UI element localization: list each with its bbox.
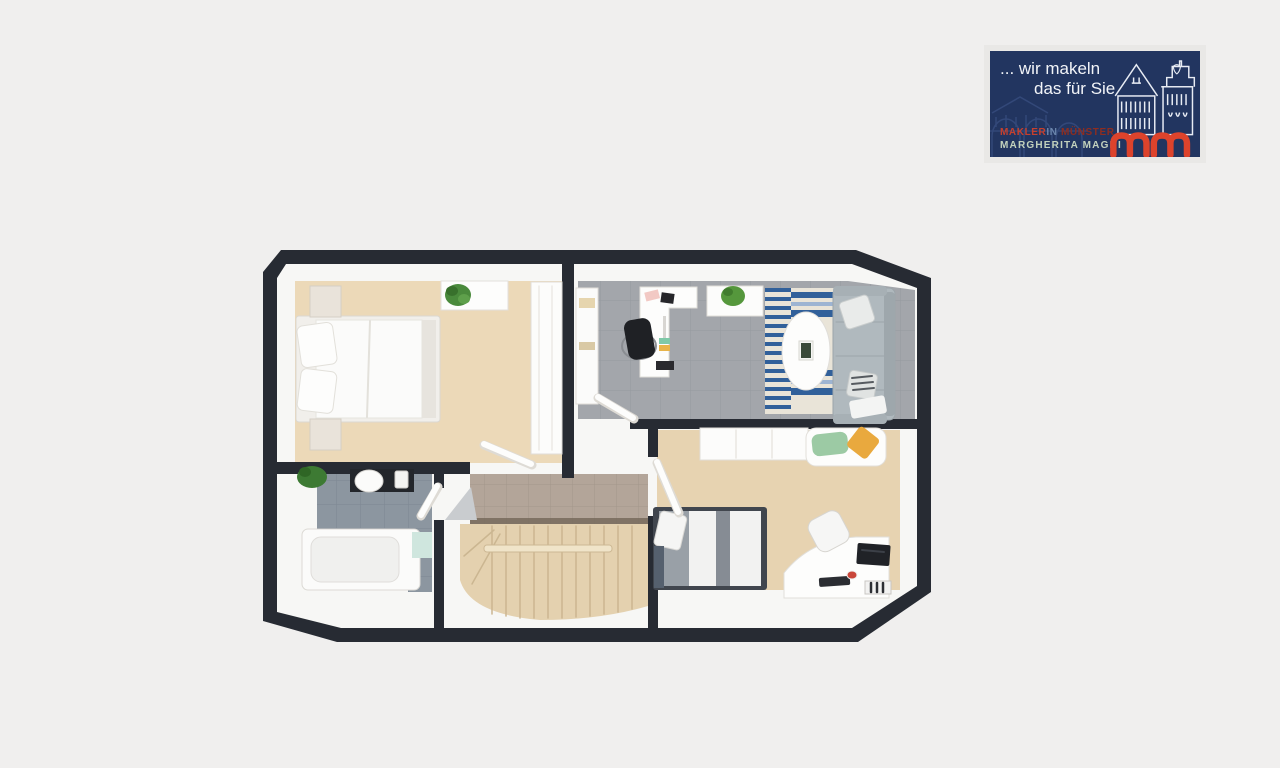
makler-logo: ... wir makeln das für Sie MAKLERIN MÜNS…	[984, 45, 1206, 163]
wardrobe-tall	[531, 282, 562, 454]
logo-tagline-line1: ... wir makeln	[1000, 59, 1120, 79]
logo-owner-name: MARGHERITA MAGRI	[1000, 140, 1122, 151]
kids-wardrobe	[700, 428, 808, 460]
books	[579, 298, 595, 308]
bath-sink	[395, 471, 408, 488]
kids-duvet-band	[689, 511, 716, 586]
plant-leaf	[299, 467, 311, 477]
pillow	[296, 322, 337, 369]
bathtub-inner	[311, 537, 399, 582]
kids-monitor	[856, 543, 890, 566]
muenster-houses-icon	[1106, 55, 1198, 157]
pillow	[297, 368, 338, 414]
table-book-cover	[801, 343, 811, 358]
logo-background: ... wir makeln das für Sie MAKLERIN MÜNS…	[990, 51, 1200, 157]
kids-duvet-band	[730, 511, 761, 586]
desk-keyboard	[656, 361, 674, 370]
bed-pocket	[654, 546, 664, 588]
floorplan-render: ... wir makeln das für Sie MAKLERIN MÜNS…	[0, 0, 1280, 768]
kids-duvet-band	[716, 511, 730, 586]
mouse-red	[847, 571, 857, 579]
wall-stairs-kids-top	[648, 429, 658, 457]
bath-mat	[412, 532, 432, 558]
stairwell-wall	[470, 474, 648, 524]
sofa-back	[884, 292, 895, 416]
logo-brand-makler: MAKLER	[1000, 127, 1046, 138]
sticky-note	[659, 338, 670, 344]
plant-leaf	[446, 286, 458, 296]
sofa-armrest	[833, 286, 887, 296]
stair-railing	[484, 545, 612, 552]
wall-bath-right-bottom	[434, 520, 444, 628]
rug-stripe	[791, 388, 837, 395]
plant-leaf	[723, 288, 733, 296]
logo-brand-line: MAKLERIN MÜNSTER	[1000, 127, 1115, 138]
books	[579, 342, 595, 350]
wall-bedroom-office	[562, 264, 574, 478]
logo-brand-in: IN	[1046, 127, 1057, 138]
staircase	[460, 524, 648, 620]
sticky-note	[659, 345, 670, 351]
desk-laptop	[660, 292, 674, 304]
nightstand	[310, 286, 341, 317]
plant-leaf	[458, 294, 470, 304]
sofa-pillow-striped	[846, 370, 878, 400]
rug-stripe	[791, 292, 837, 298]
nightstand	[310, 419, 341, 450]
cushion-green	[811, 431, 849, 457]
rug-stripe	[791, 302, 837, 306]
toilet	[355, 470, 383, 492]
bed-foot-runner	[422, 320, 436, 418]
plant	[721, 286, 745, 306]
